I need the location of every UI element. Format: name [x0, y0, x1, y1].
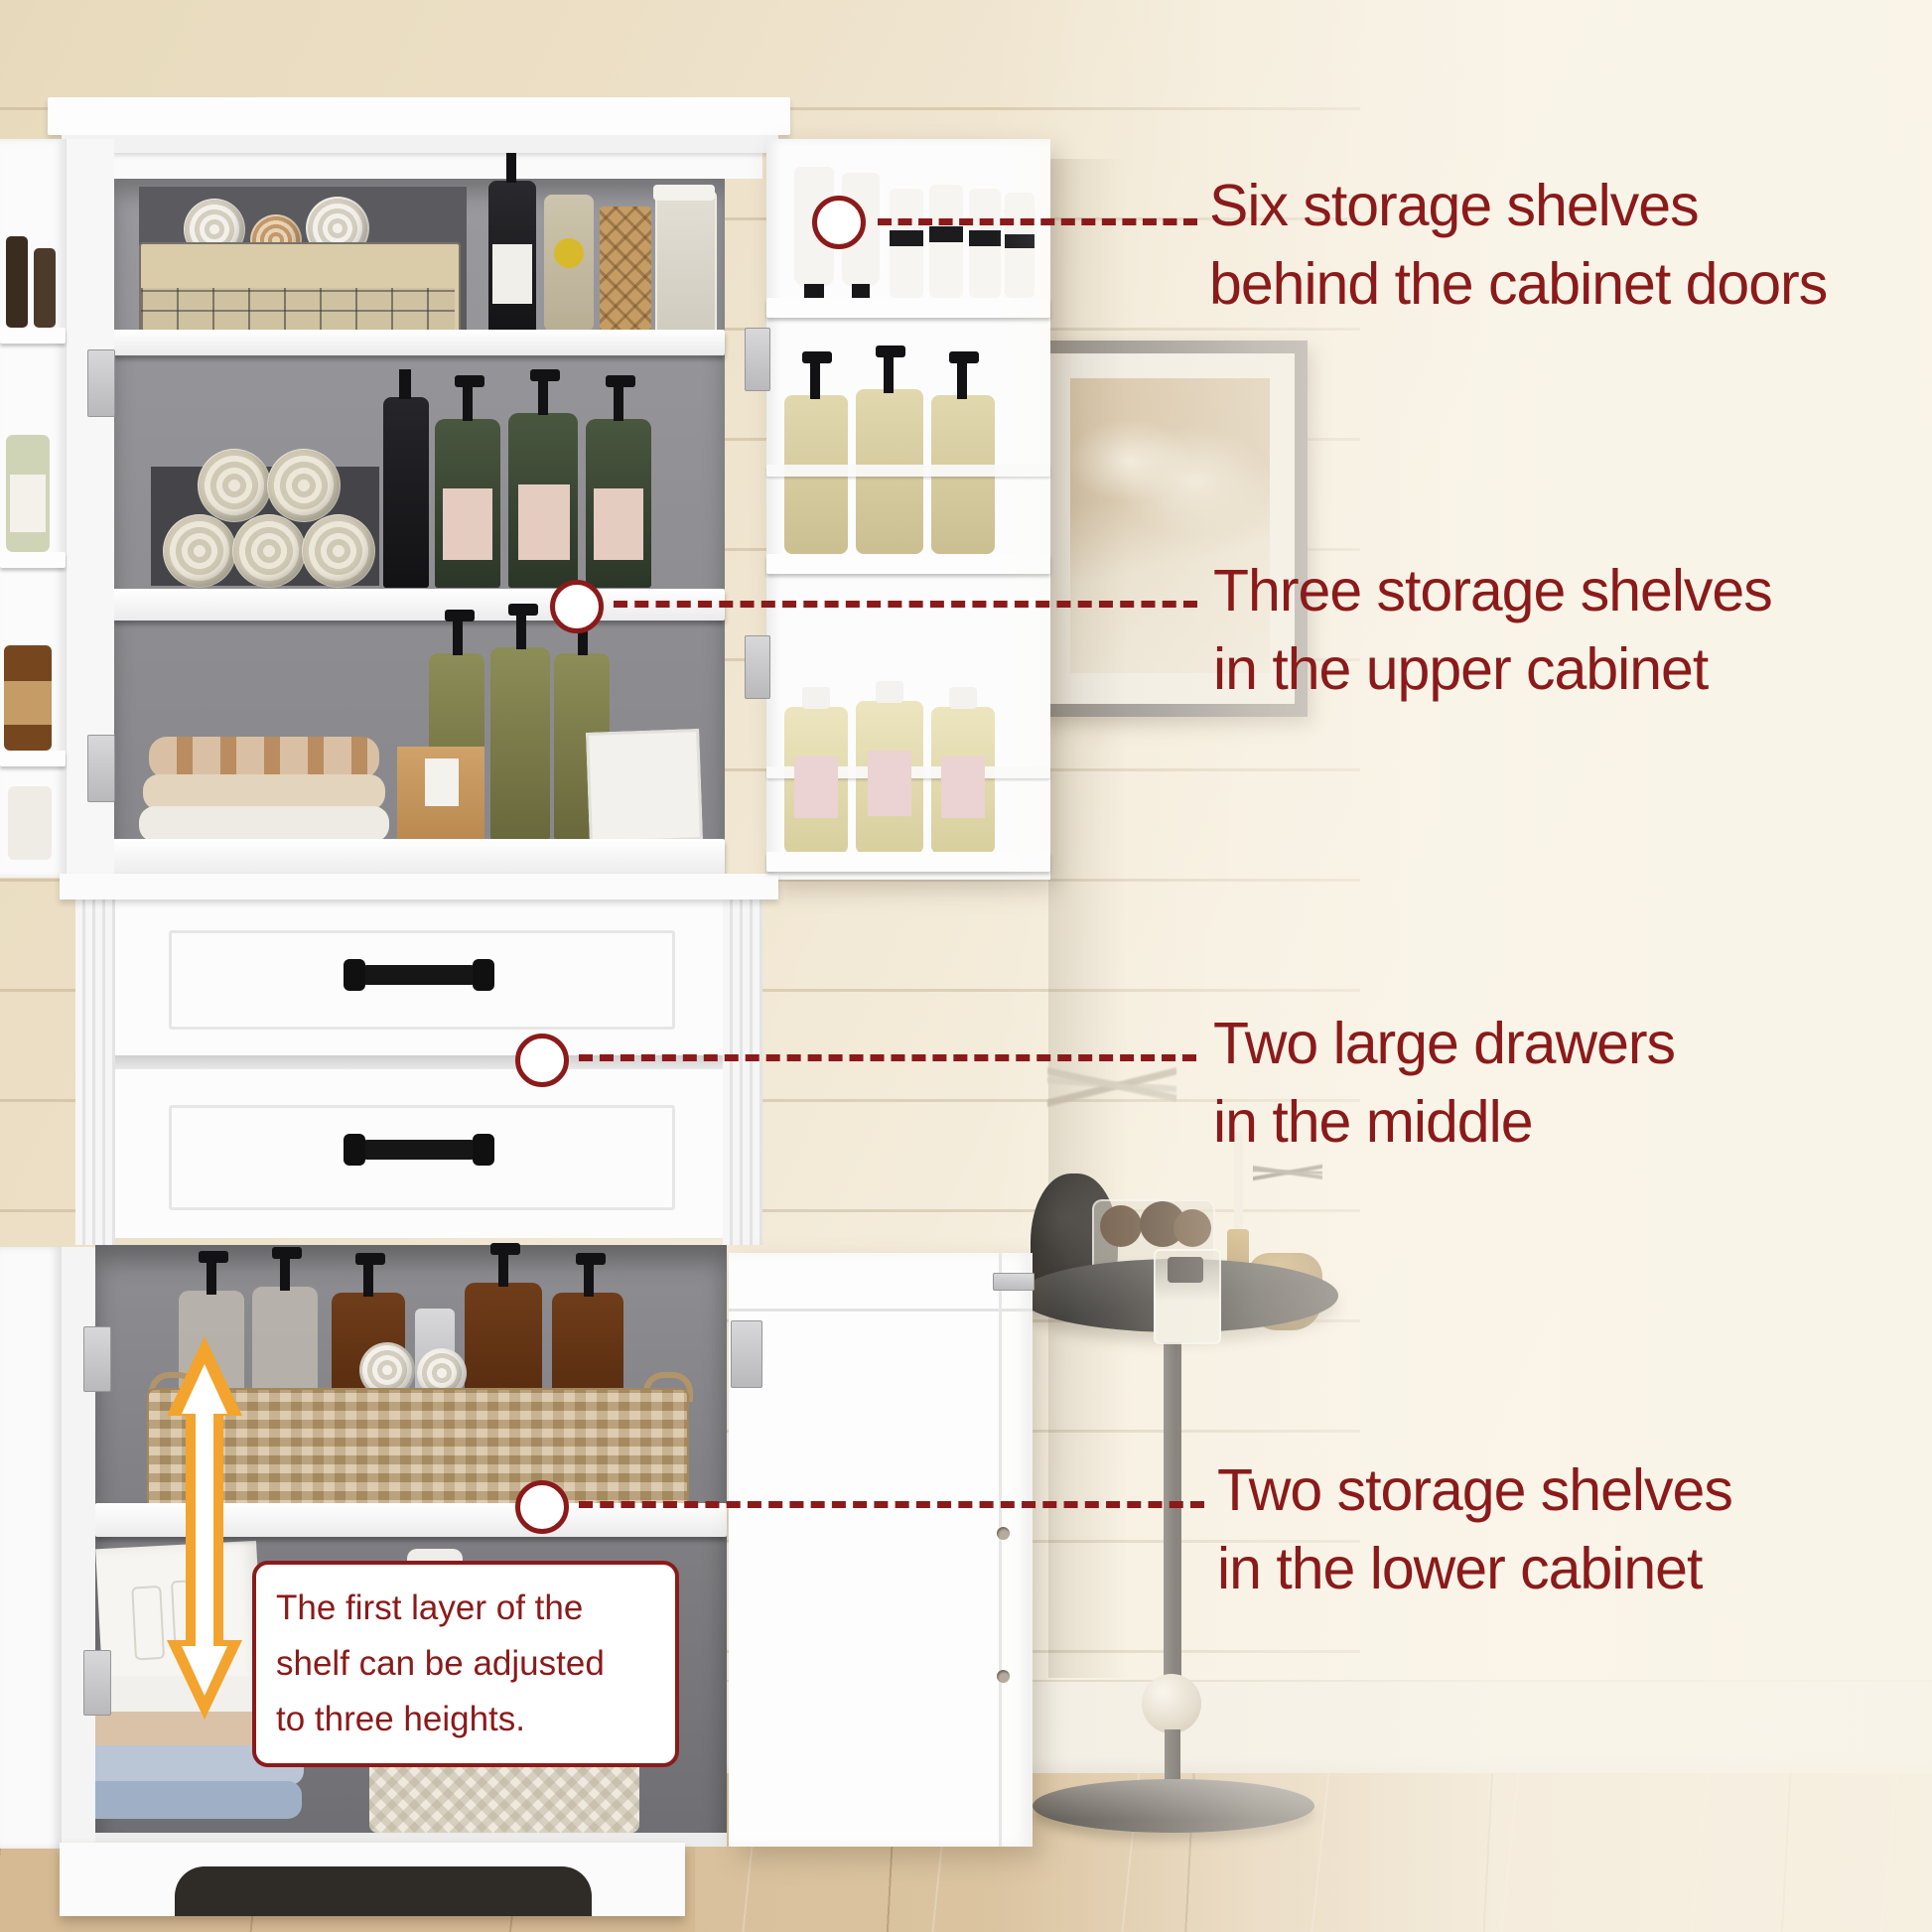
door-shelf-rail — [766, 298, 1050, 318]
bottle-black-band — [929, 226, 963, 242]
pump-stem — [538, 377, 548, 415]
jar-kraft-band — [4, 681, 52, 725]
pump-stem — [498, 1251, 508, 1287]
crown-underlip — [62, 135, 778, 153]
bottle-label — [594, 488, 643, 560]
door-shelf-rail — [0, 751, 66, 766]
annotation-line: Two storage shelves — [1217, 1451, 1732, 1530]
folded-towel-white — [139, 806, 389, 842]
rolled-towel — [163, 514, 236, 588]
rolled-towel — [232, 514, 306, 588]
olive-bottle — [490, 647, 550, 840]
annotation-line: Six storage shelves — [1209, 167, 1827, 245]
lower-right-door — [729, 1253, 1033, 1847]
drawer-handle-cap — [344, 959, 365, 991]
pump-stem — [584, 1261, 594, 1297]
hinge — [731, 1320, 762, 1388]
wire-grid — [141, 288, 455, 332]
drawer-handle-cap — [344, 1134, 365, 1166]
dashed-leader-line — [579, 1501, 1204, 1508]
door-screw — [997, 1527, 1010, 1540]
drawer-handle-cap — [473, 1134, 494, 1166]
circle-marker — [515, 1480, 569, 1534]
drawer-handle-cap — [473, 959, 494, 991]
canister-lid — [653, 185, 715, 201]
circle-marker — [550, 580, 604, 633]
pump-stem — [207, 1259, 216, 1295]
mid-band — [60, 874, 778, 899]
black-bottle — [383, 397, 429, 588]
pump-nozzle — [530, 369, 560, 381]
pump-stem — [363, 1261, 373, 1297]
bottle-label — [492, 244, 532, 304]
circle-marker — [812, 196, 866, 249]
arrow-head-down-fill — [182, 1646, 227, 1696]
dashed-leader-line — [579, 1054, 1196, 1061]
callout-line: The first layer of the — [276, 1581, 665, 1636]
pump-stem — [810, 359, 820, 399]
lattice-box — [600, 207, 651, 332]
pump-stem — [957, 359, 967, 399]
rolled-towel — [302, 514, 375, 588]
folded-towel-striped — [149, 737, 379, 778]
top-rail — [75, 153, 762, 179]
upper-shelf-1 — [113, 330, 725, 355]
label-dot — [554, 238, 584, 268]
pump-nozzle — [445, 610, 475, 621]
plinth — [60, 1843, 685, 1916]
marble-sphere — [1142, 1674, 1201, 1733]
pinecone — [1173, 1209, 1211, 1247]
bottle-cap-white — [876, 681, 903, 703]
pump-stem — [453, 618, 463, 655]
glass-canister — [655, 191, 717, 336]
white-box — [586, 729, 703, 844]
annotation-line: Three storage shelves — [1213, 552, 1772, 630]
drawer-stile-left — [75, 899, 115, 1245]
door-screw — [997, 1670, 1010, 1683]
pump-nozzle — [272, 1247, 302, 1259]
pump-nozzle — [508, 604, 538, 616]
hinge — [87, 735, 115, 802]
dropper-bottle — [6, 236, 28, 328]
annotation-text: Two large drawers in the middle — [1213, 1005, 1675, 1162]
annotation-line: in the lower cabinet — [1217, 1530, 1732, 1608]
pump-nozzle — [490, 1243, 520, 1255]
annotation-line: Two large drawers — [1213, 1005, 1675, 1083]
bottle-black-band — [890, 230, 923, 246]
table-base — [1033, 1779, 1314, 1833]
bottle-label-pink — [868, 751, 911, 816]
bottle-black-band — [1005, 234, 1035, 248]
pump-nozzle — [949, 351, 979, 363]
bottle-label — [443, 488, 492, 560]
hinge — [745, 635, 770, 699]
pump-stem — [280, 1255, 290, 1291]
pump-stem — [614, 383, 623, 421]
callout-line: to three heights. — [276, 1692, 665, 1747]
hinge — [83, 1650, 111, 1716]
door-guard-rail — [766, 465, 1050, 477]
rolled-towel — [198, 449, 271, 522]
arrow-head-up-fill — [182, 1364, 227, 1414]
pump-nozzle — [355, 1253, 385, 1265]
dried-stems — [1047, 978, 1176, 1191]
pump-stem — [463, 383, 473, 421]
dashed-leader-line — [614, 601, 1197, 608]
adjustable-shelf-callout: The first layer of the shelf can be adju… — [252, 1561, 679, 1767]
annotation-line: in the upper cabinet — [1213, 630, 1772, 709]
hinge — [83, 1326, 111, 1392]
hinge — [745, 328, 770, 391]
arrow-shaft-fill — [196, 1408, 213, 1658]
door-edge-stile — [999, 1253, 1002, 1847]
door-shelf-rail — [0, 328, 66, 344]
pump-stem — [516, 612, 526, 649]
pump-nozzle — [199, 1251, 228, 1263]
dropper-top — [399, 369, 411, 399]
kraft-box-ticket — [425, 759, 459, 806]
product-annotation-scene: Six storage shelves behind the cabinet d… — [0, 0, 1932, 1932]
rolled-towel — [267, 449, 341, 522]
door-shelf-rail — [0, 552, 66, 568]
pump-stem — [884, 353, 894, 393]
pump-stem — [506, 153, 516, 183]
annotation-text: Six storage shelves behind the cabinet d… — [1209, 167, 1827, 324]
door-shelf-rail — [766, 554, 1050, 574]
folded-towel-beige — [143, 774, 385, 810]
hinge-plate — [993, 1273, 1035, 1291]
door-shelf-rail — [766, 852, 1050, 872]
pump-nozzle — [576, 1253, 606, 1265]
annotation-text: Three storage shelves in the upper cabin… — [1213, 552, 1772, 709]
dropper-bottle — [34, 248, 56, 328]
pinecone — [1100, 1205, 1142, 1247]
bottle-label — [518, 484, 570, 560]
pump-nozzle — [802, 351, 832, 363]
annotation-text: Two storage shelves in the lower cabinet — [1217, 1451, 1732, 1608]
circle-marker — [515, 1034, 569, 1087]
bottle-label — [10, 475, 46, 532]
upper-bottom-board — [113, 839, 725, 877]
plinth-arch — [175, 1866, 592, 1916]
dashed-leader-line — [878, 218, 1197, 225]
candle-wax — [1168, 1257, 1203, 1283]
cabinet-wall-shadow — [1048, 159, 1128, 1678]
bottle-cap-white — [949, 687, 977, 709]
wire-basket — [139, 242, 461, 338]
bottle-cap-white — [802, 687, 830, 709]
drawer-stile-right — [723, 899, 762, 1245]
lower-left-door — [0, 1247, 62, 1849]
annotation-line: behind the cabinet doors — [1209, 245, 1827, 324]
white-jar — [8, 786, 52, 860]
pump-nozzle — [876, 345, 905, 357]
drawer-handle — [357, 965, 481, 985]
annotation-line: in the middle — [1213, 1083, 1675, 1162]
pump-nozzle — [455, 375, 484, 387]
callout-line: shelf can be adjusted — [276, 1636, 665, 1692]
bottle-black-band — [969, 230, 1001, 246]
hinge — [87, 349, 115, 417]
bottle-label-pink — [941, 757, 985, 818]
tube-cap — [852, 284, 870, 298]
bottle-label-pink — [794, 757, 838, 818]
crown-molding — [48, 97, 790, 135]
bag-bottle-sketch — [131, 1586, 165, 1660]
drawer-handle — [357, 1140, 481, 1160]
door-top-groove — [729, 1309, 1033, 1311]
pump-nozzle — [606, 375, 635, 387]
